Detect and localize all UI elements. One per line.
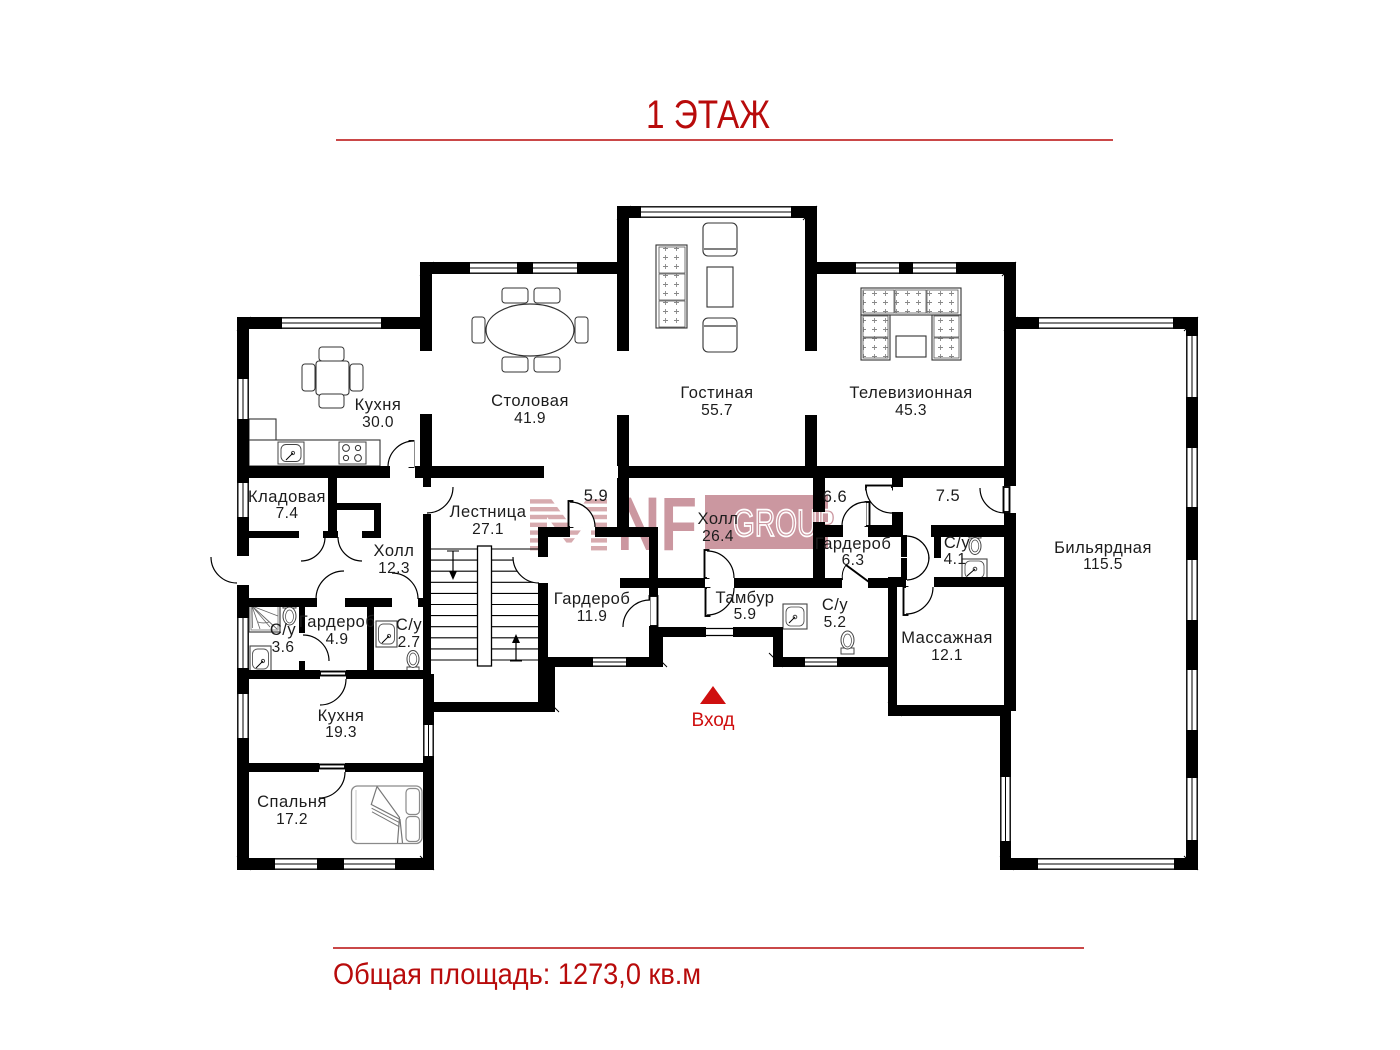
svg-text:5.9: 5.9 [734, 606, 757, 623]
svg-text:5.2: 5.2 [824, 614, 847, 631]
svg-text:Кухня: Кухня [318, 707, 365, 725]
svg-text:С/у: С/у [396, 616, 423, 634]
svg-text:41.9: 41.9 [514, 410, 546, 427]
svg-text:19.3: 19.3 [325, 724, 357, 741]
svg-text:5.9: 5.9 [584, 487, 608, 505]
svg-text:7.5: 7.5 [936, 487, 960, 505]
svg-text:Кухня: Кухня [355, 396, 402, 414]
svg-text:Тамбур: Тамбур [715, 589, 774, 607]
svg-text:12.3: 12.3 [378, 560, 410, 577]
svg-text:С/у: С/у [270, 621, 297, 639]
svg-text:Гардероб: Гардероб [815, 535, 892, 553]
svg-text:Гостиная: Гостиная [680, 384, 753, 402]
svg-text:6.3: 6.3 [842, 552, 865, 569]
svg-text:11.9: 11.9 [577, 608, 608, 625]
svg-text:Холл: Холл [374, 542, 415, 560]
svg-text:Вход: Вход [692, 710, 735, 731]
svg-text:6.6: 6.6 [823, 488, 847, 506]
svg-text:Гардероб: Гардероб [554, 590, 631, 608]
svg-text:115.5: 115.5 [1083, 556, 1123, 573]
svg-text:4.1: 4.1 [944, 551, 967, 568]
svg-text:Общая площадь: 1273,0 кв.м: Общая площадь: 1273,0 кв.м [333, 958, 701, 991]
svg-text:Холл: Холл [698, 510, 739, 528]
svg-text:3.6: 3.6 [272, 639, 295, 656]
svg-text:2.7: 2.7 [398, 634, 421, 651]
svg-text:Кладовая: Кладовая [248, 488, 326, 506]
svg-text:Гардероб: Гардероб [299, 613, 376, 631]
svg-text:26.4: 26.4 [702, 528, 734, 545]
svg-text:Телевизионная: Телевизионная [849, 384, 972, 402]
svg-text:30.0: 30.0 [362, 414, 394, 431]
svg-text:12.1: 12.1 [931, 647, 963, 664]
svg-text:Бильярдная: Бильярдная [1054, 539, 1152, 557]
svg-text:С/у: С/у [822, 596, 849, 614]
svg-text:Столовая: Столовая [491, 392, 569, 410]
svg-text:Массажная: Массажная [901, 629, 993, 647]
svg-text:17.2: 17.2 [276, 811, 308, 828]
svg-text:Спальня: Спальня [257, 793, 327, 811]
svg-text:27.1: 27.1 [472, 521, 504, 538]
svg-text:45.3: 45.3 [895, 402, 927, 419]
svg-text:1 ЭТАЖ: 1 ЭТАЖ [646, 93, 770, 137]
svg-text:Лестница: Лестница [450, 503, 527, 521]
svg-text:55.7: 55.7 [701, 402, 733, 419]
svg-text:С/у: С/у [944, 534, 971, 552]
svg-text:7.4: 7.4 [276, 505, 299, 522]
svg-text:4.9: 4.9 [326, 631, 349, 648]
